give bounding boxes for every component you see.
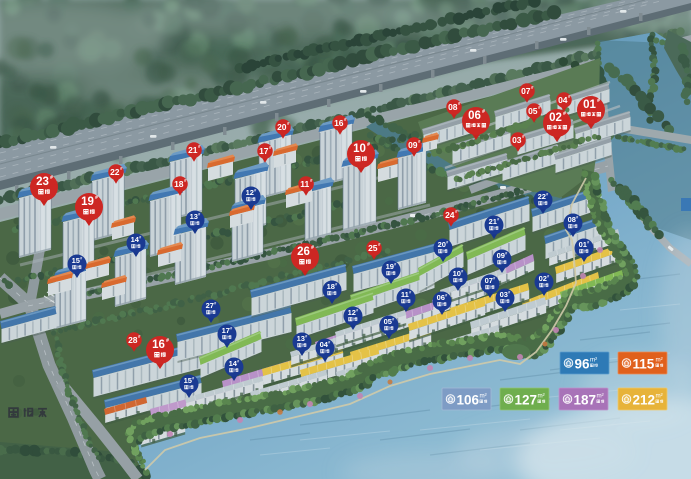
svg-text:16: 16	[152, 339, 165, 351]
svg-text:01: 01	[583, 99, 596, 111]
svg-text:20: 20	[438, 240, 446, 249]
svg-text:12: 12	[246, 188, 254, 197]
svg-text:16: 16	[334, 118, 344, 128]
svg-text:03: 03	[500, 290, 508, 299]
svg-text:11: 11	[300, 179, 309, 189]
svg-text:27: 27	[206, 301, 214, 310]
svg-text:09: 09	[408, 140, 418, 150]
svg-text:#: #	[482, 109, 485, 115]
svg-text:m²: m²	[538, 393, 545, 400]
svg-text:m²: m²	[480, 393, 487, 400]
svg-text:21: 21	[489, 217, 497, 226]
svg-text:13: 13	[297, 334, 305, 343]
svg-text:19: 19	[81, 196, 94, 208]
svg-text:15: 15	[72, 256, 80, 265]
svg-text:02: 02	[549, 112, 562, 124]
svg-text:18: 18	[174, 179, 184, 189]
svg-text:08: 08	[448, 102, 458, 112]
svg-text:#: #	[166, 338, 169, 344]
svg-text:17: 17	[259, 146, 269, 156]
svg-text:05: 05	[384, 317, 392, 326]
svg-text:106: 106	[457, 393, 480, 408]
svg-text:24: 24	[445, 210, 455, 220]
svg-text:06: 06	[437, 293, 445, 302]
svg-text:07: 07	[485, 276, 493, 285]
svg-text:22: 22	[110, 167, 120, 177]
svg-text:23: 23	[36, 176, 49, 188]
svg-text:20: 20	[277, 122, 287, 132]
svg-text:#: #	[563, 111, 566, 117]
svg-text:m²: m²	[656, 357, 663, 364]
svg-text:01: 01	[579, 240, 587, 249]
svg-text:15: 15	[184, 376, 192, 385]
svg-text:03: 03	[512, 135, 522, 145]
svg-text:12: 12	[348, 308, 356, 317]
svg-text:18: 18	[327, 282, 335, 291]
svg-text:26: 26	[297, 246, 310, 258]
svg-text:#: #	[367, 142, 370, 148]
svg-text:19: 19	[386, 262, 394, 271]
svg-text:25: 25	[368, 243, 378, 253]
svg-text:02: 02	[539, 274, 547, 283]
svg-text:127: 127	[515, 393, 538, 408]
svg-text:#: #	[50, 175, 53, 181]
svg-text:07: 07	[521, 86, 531, 96]
svg-text:10: 10	[453, 269, 461, 278]
svg-text:05: 05	[528, 106, 538, 116]
svg-text:17: 17	[222, 326, 230, 335]
svg-text:08: 08	[568, 215, 576, 224]
svg-text:m²: m²	[590, 357, 597, 364]
svg-text:09: 09	[497, 251, 505, 260]
svg-text:06: 06	[468, 110, 481, 122]
svg-text:22: 22	[538, 192, 546, 201]
svg-text:13: 13	[190, 212, 198, 221]
svg-text:10: 10	[353, 143, 366, 155]
svg-text:#: #	[597, 98, 600, 104]
svg-text:m²: m²	[597, 393, 604, 400]
svg-text:04: 04	[558, 95, 568, 105]
svg-text:212: 212	[633, 393, 656, 408]
svg-text:m²: m²	[656, 393, 663, 400]
svg-text:187: 187	[574, 393, 597, 408]
svg-text:96: 96	[575, 357, 591, 372]
svg-text:115: 115	[633, 357, 655, 372]
svg-text:#: #	[311, 245, 314, 251]
svg-text:11: 11	[401, 290, 409, 299]
svg-text:28: 28	[128, 335, 138, 345]
svg-text:#: #	[95, 195, 98, 201]
svg-text:21: 21	[188, 145, 198, 155]
